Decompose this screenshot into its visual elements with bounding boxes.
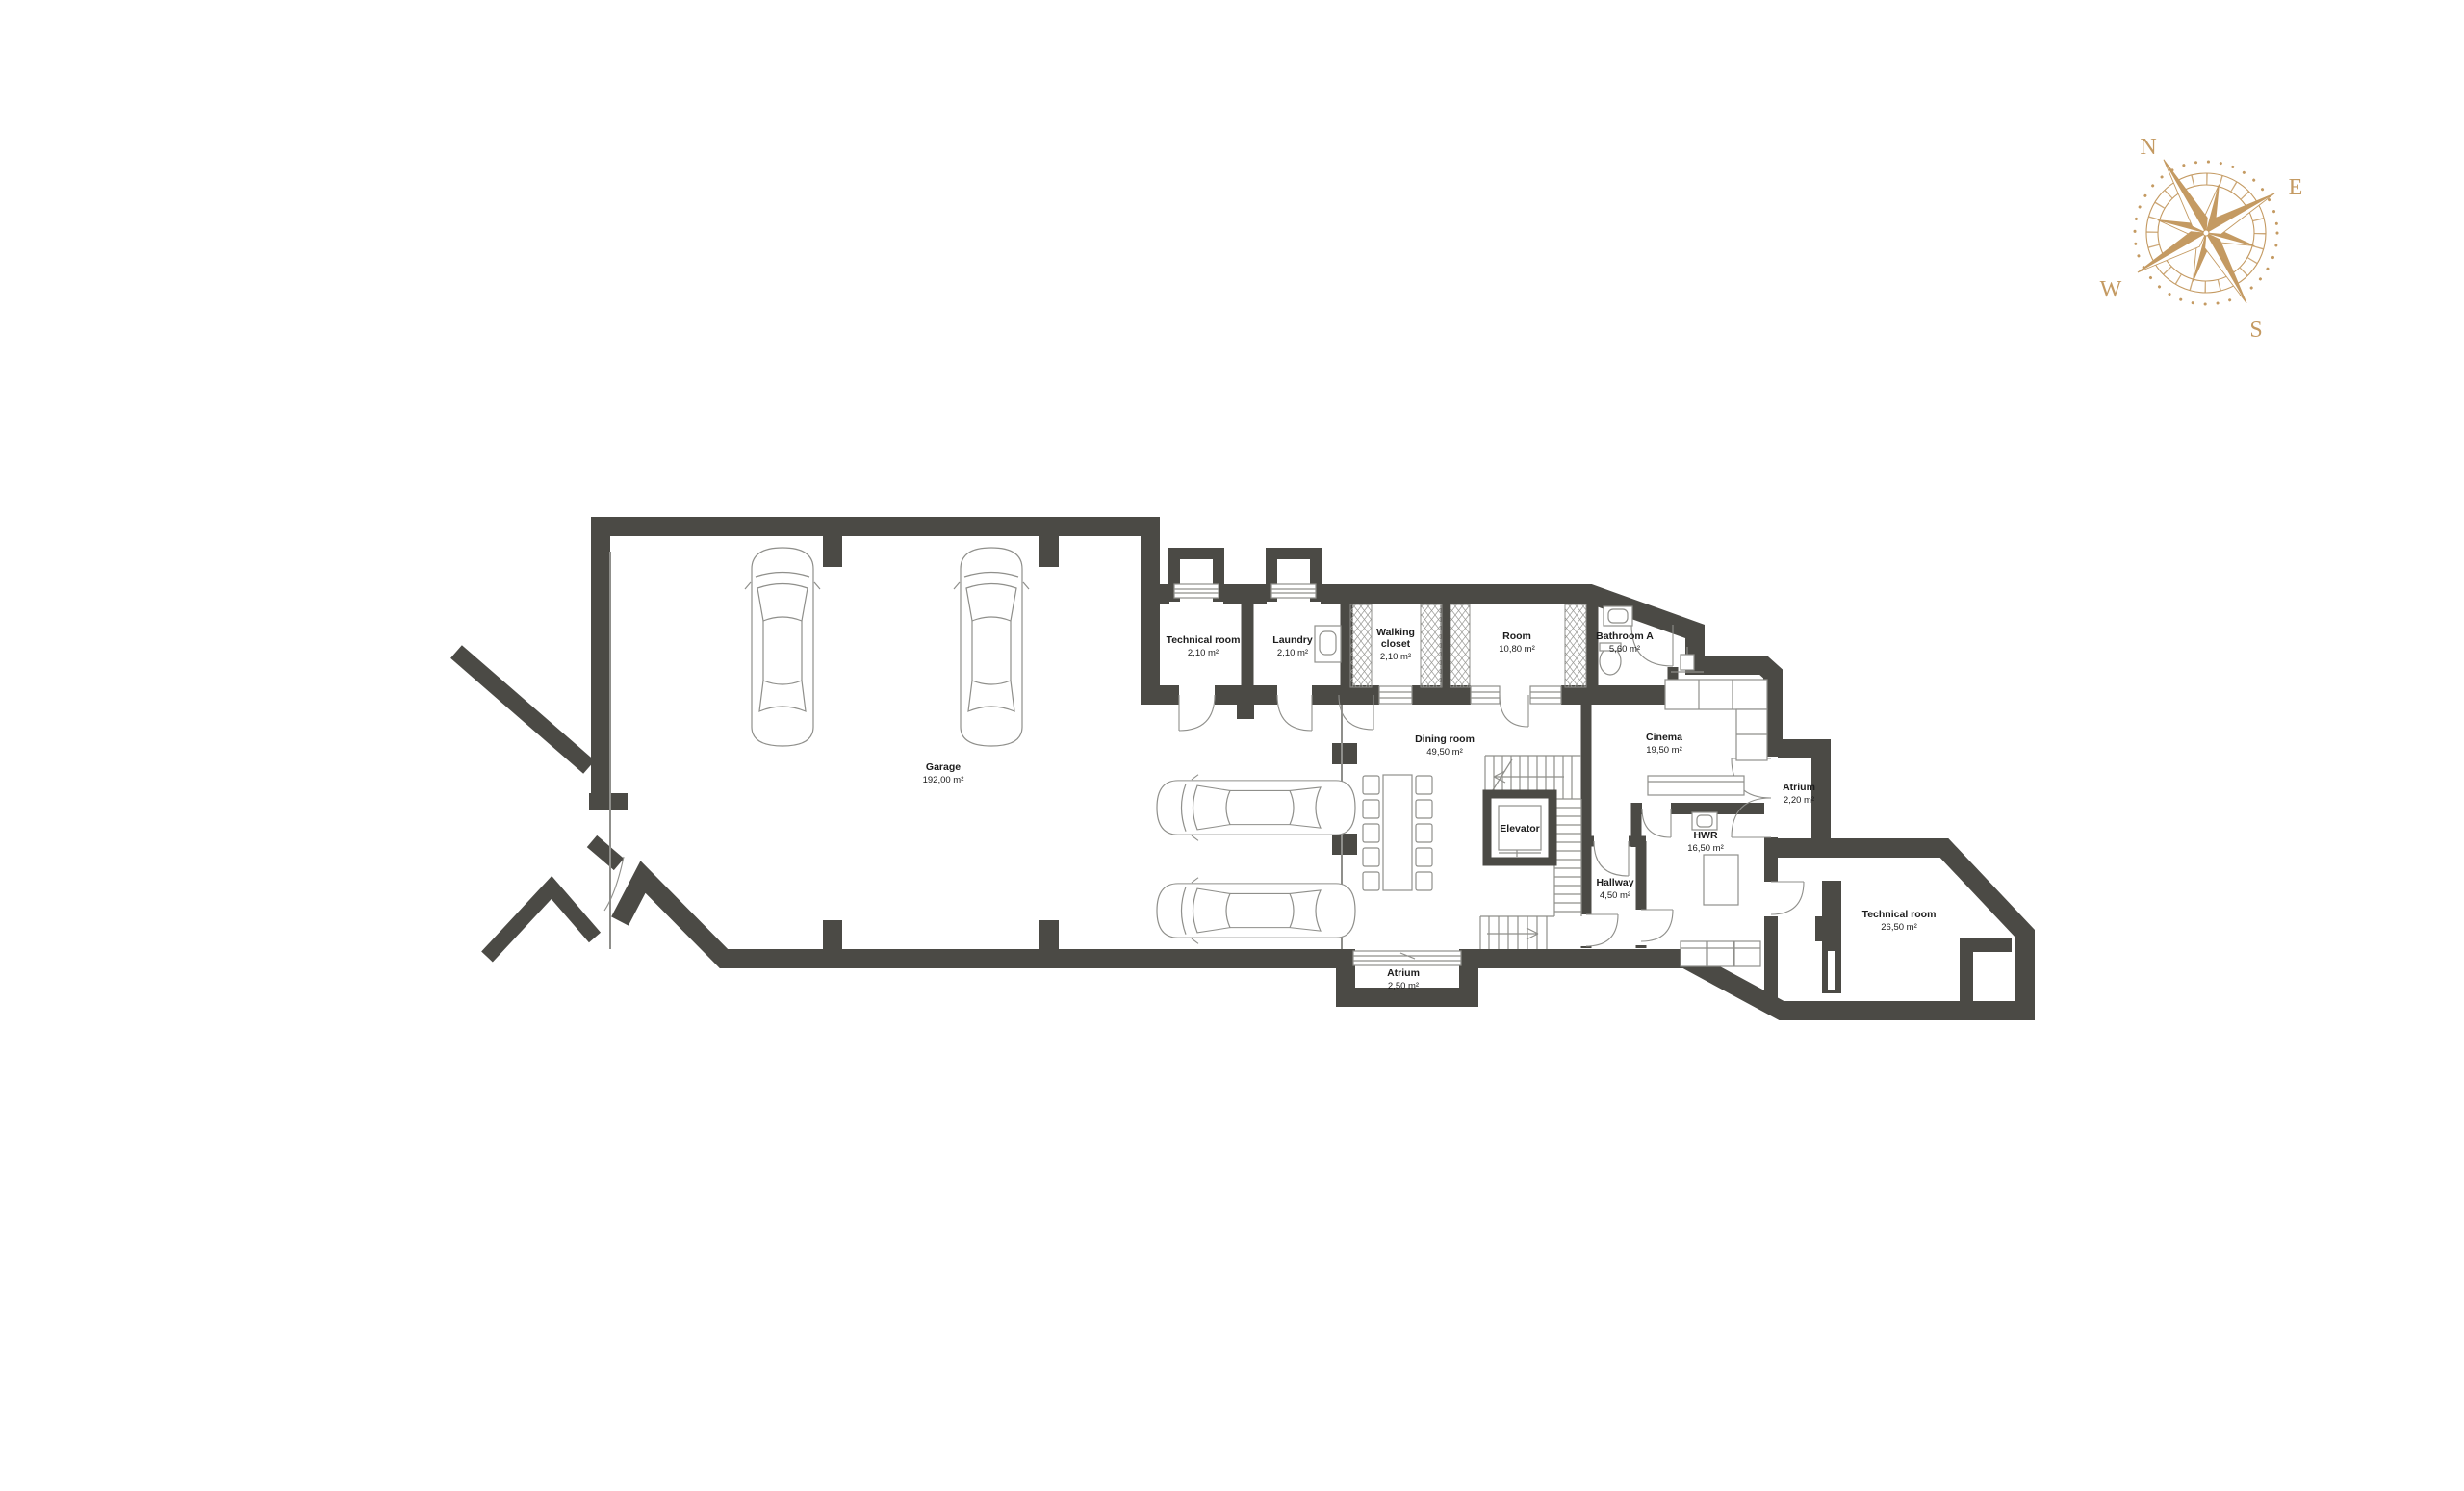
cinema-console [1648,776,1744,795]
room-name: Laundry [1272,634,1313,646]
room-label-atrium-upper: Atrium 2,20 m² [1783,782,1815,806]
room-label-walking-closet: Walking closet 2,10 m² [1376,627,1415,662]
glass-wall-pillar [1332,834,1357,855]
room-name: Elevator [1500,823,1539,835]
parked-car [954,548,1029,746]
room-window [1471,686,1500,704]
room-label-garage: Garage 192,00 m² [923,761,964,785]
room-name: Cinema [1646,732,1682,743]
glass-wall-pillar [1332,743,1357,764]
wardrobe [1450,604,1470,687]
compass-east-label: E [2289,175,2303,200]
room-area: 49,50 m² [1426,747,1463,758]
bay-window [1271,584,1316,598]
room-name: Technical room [1862,909,1937,920]
wardrobe [1350,604,1372,687]
room-name: Technical room [1167,634,1241,646]
room-label-cinema: Cinema 19,50 m² [1646,732,1682,756]
strip-pillar-stub [1237,705,1254,719]
room-area: 192,00 m² [923,775,964,785]
driveway-diagonal-wall [456,652,589,767]
tv-icon [1681,655,1694,670]
room-area: 16,50 m² [1687,843,1724,854]
room-label-elevator: Elevator [1500,823,1539,835]
parked-car [1157,775,1355,841]
dining-table [1383,775,1412,890]
floorplan-drawing: Garage 192,00 m² Technical room 2,10 m² … [0,0,2464,1491]
hwr-table [1704,855,1738,905]
compass-north-label: N [2140,135,2156,160]
room-area: 2,50 m² [1388,981,1419,991]
garage-pillar [823,920,842,951]
room-area: 2,20 m² [1784,795,1814,806]
room-label-hallway: Hallway 4,50 m² [1596,877,1633,901]
floorplan-page: Garage 192,00 m² Technical room 2,10 m² … [0,0,2464,1491]
room-label-technical-large: Technical room 26,50 m² [1862,909,1937,933]
room-label-technical-small: Technical room 2,10 m² [1167,634,1241,658]
compass-west-label: W [2100,277,2122,302]
room-label-atrium-lower: Atrium 2,50 m² [1387,967,1420,991]
entry-zigzag-wall [487,887,595,957]
garage-pillar [1039,920,1059,951]
room-name: HWR [1693,830,1717,841]
parked-car [1157,878,1355,944]
room-label-room: Room 10,80 m² [1499,630,1535,655]
room-name: Hallway [1596,877,1633,888]
garage-pillar [1039,536,1059,567]
room-name: Walking [1376,627,1415,638]
compass-south-label: S [2249,318,2262,343]
washing-machine [1734,941,1760,966]
stair-direction-arrow [1487,928,1538,939]
room-window [1379,686,1412,704]
washing-machine [1681,941,1707,966]
room-area: 4,50 m² [1600,890,1630,901]
room-name: Atrium [1387,967,1420,979]
garage-pillar [823,536,842,567]
room-name: Bathroom A [1596,630,1654,642]
room-area: 5,60 m² [1609,644,1640,655]
room-label-hwr: HWR 16,50 m² [1687,830,1724,854]
room-area: 19,50 m² [1646,745,1682,756]
room-name: Dining room [1415,733,1475,745]
room-area: 2,10 m² [1188,648,1219,658]
room-name: closet [1381,638,1411,650]
room-area: 2,10 m² [1380,652,1411,662]
cinema-sofa [1665,680,1767,709]
room-name: Atrium [1783,782,1815,793]
wardrobe [1421,604,1442,687]
room-name: Garage [926,761,961,773]
atrium-window [1353,951,1461,965]
bay-window [1174,584,1219,598]
parked-car [745,548,820,746]
room-label-laundry: Laundry 2,10 m² [1272,634,1313,658]
room-name: Room [1502,630,1531,642]
washing-machine [1707,941,1733,966]
wardrobe [1565,604,1586,687]
room-label-dining-room: Dining room 49,50 m² [1415,733,1475,758]
garage-left-wall-foot [589,793,628,810]
room-area: 10,80 m² [1499,644,1535,655]
staircase [1480,756,1581,949]
room-window [1530,686,1561,704]
room-area: 26,50 m² [1881,922,1917,933]
room-area: 2,10 m² [1277,648,1308,658]
entry-door-jamb-wall [592,841,619,864]
compass-rose: N E S W [2095,120,2315,343]
